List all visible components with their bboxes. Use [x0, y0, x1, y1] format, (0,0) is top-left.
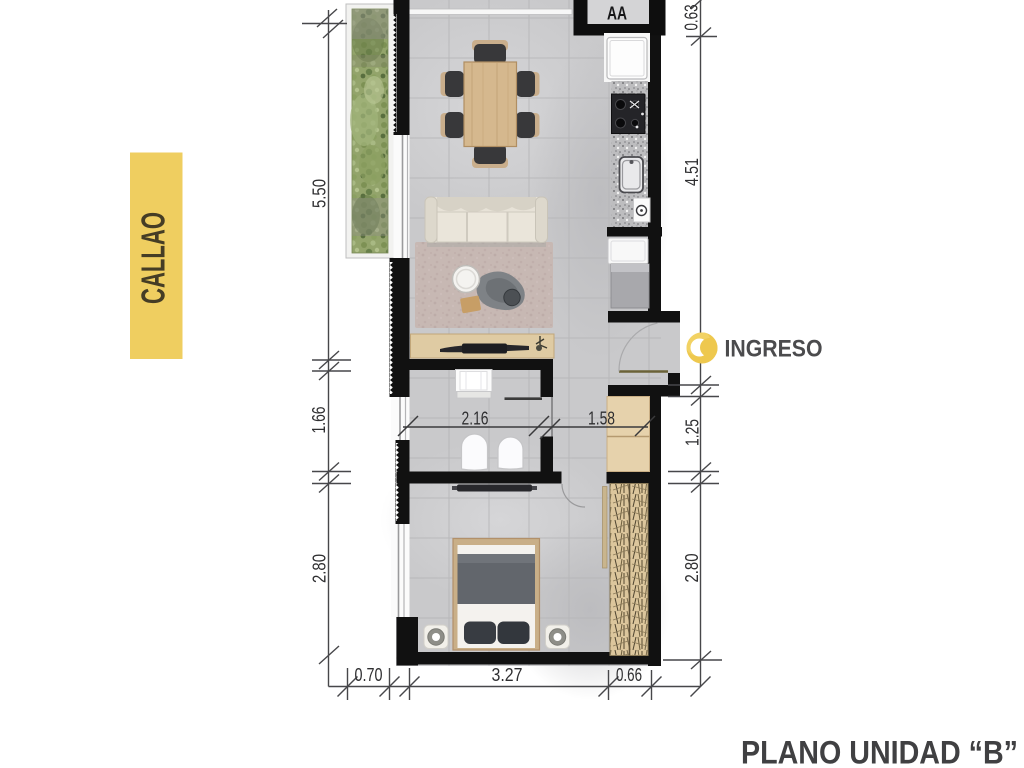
svg-text:0.70: 0.70: [355, 665, 383, 685]
svg-text:0.63: 0.63: [682, 5, 702, 31]
svg-text:PLANO UNIDAD “B”: PLANO UNIDAD “B”: [741, 735, 1018, 768]
svg-text:2.80: 2.80: [310, 554, 330, 583]
svg-text:2.80: 2.80: [682, 554, 702, 583]
svg-text:1.58: 1.58: [588, 408, 615, 429]
svg-text:INGRESO: INGRESO: [725, 336, 823, 363]
svg-text:4.51: 4.51: [682, 158, 702, 186]
svg-text:2.16: 2.16: [462, 408, 489, 429]
svg-text:1.66: 1.66: [309, 407, 329, 434]
svg-text:CALLAO: CALLAO: [135, 212, 172, 304]
svg-text:0.66: 0.66: [616, 665, 642, 685]
svg-text:3.27: 3.27: [492, 665, 523, 685]
svg-text:5.50: 5.50: [310, 179, 330, 208]
svg-text:1.25: 1.25: [683, 419, 703, 446]
svg-text:AA: AA: [607, 4, 627, 24]
